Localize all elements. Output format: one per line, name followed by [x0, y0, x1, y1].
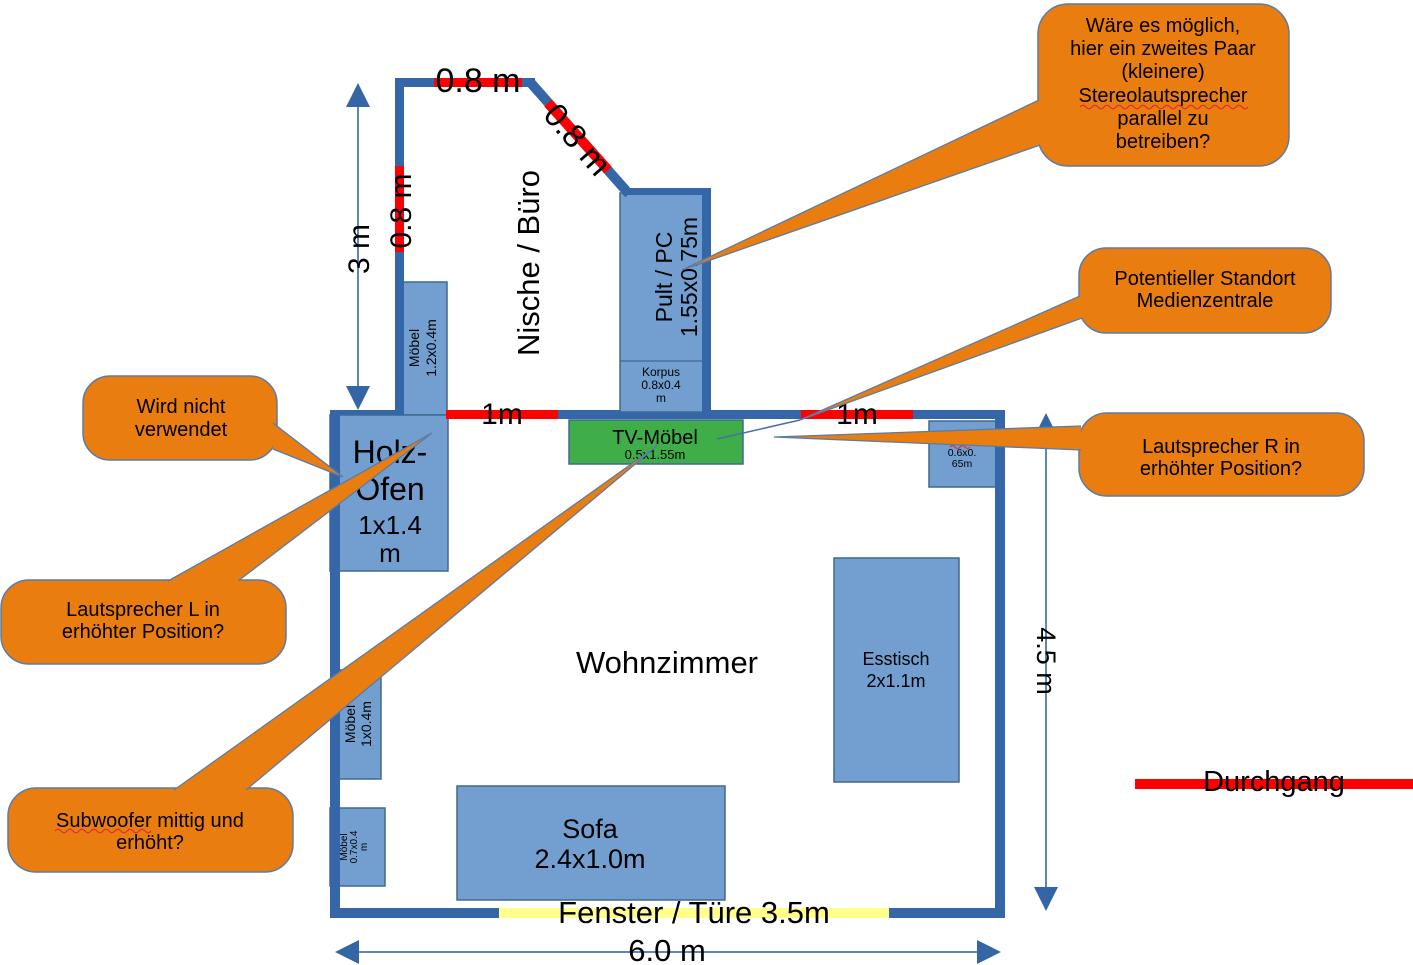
svg-text:parallel zu: parallel zu [1117, 108, 1208, 130]
svg-text:2.4x1.0m: 2.4x1.0m [534, 844, 645, 874]
svg-text:Wäre es möglich,: Wäre es möglich, [1086, 15, 1241, 37]
svg-text:0.8 m: 0.8 m [435, 62, 520, 100]
svg-text:verwendet: verwendet [135, 419, 228, 441]
svg-text:Durchgang: Durchgang [1203, 766, 1345, 798]
svg-text:erhöhter Position?: erhöhter Position? [62, 621, 224, 643]
svg-text:1x1.4: 1x1.4 [358, 510, 422, 540]
svg-text:Esstisch: Esstisch [862, 649, 929, 669]
svg-text:m: m [656, 391, 666, 405]
svg-text:Medienzentrale: Medienzentrale [1137, 290, 1274, 312]
svg-text:1m: 1m [481, 398, 523, 431]
svg-text:Wird nicht: Wird nicht [137, 396, 226, 418]
svg-text:betreiben?: betreiben? [1116, 131, 1211, 153]
svg-text:4.5 m: 4.5 m [1031, 627, 1061, 695]
svg-text:Lautsprecher R in: Lautsprecher R in [1142, 436, 1300, 458]
svg-text:3 m: 3 m [343, 224, 376, 274]
svg-text:erhöht?: erhöht? [116, 832, 184, 854]
svg-text:0.8x0.4: 0.8x0.4 [641, 378, 681, 392]
svg-text:2x1.1m: 2x1.1m [866, 671, 925, 691]
svg-text:m: m [379, 538, 401, 568]
svg-text:0.8 m: 0.8 m [385, 173, 418, 248]
svg-text:0.5x1.55m: 0.5x1.55m [625, 447, 686, 462]
svg-text:Pult / PC: Pult / PC [651, 232, 677, 323]
svg-text:Nische / Büro: Nische / Büro [511, 170, 546, 356]
svg-text:Möbel: Möbel [342, 705, 358, 743]
svg-text:m: m [359, 843, 370, 851]
svg-text:Potentieller Standort: Potentieller Standort [1114, 268, 1296, 290]
svg-text:Fenster / Türe 3.5m: Fenster / Türe 3.5m [558, 895, 830, 930]
svg-text:Stereolautsprecher: Stereolautsprecher [1079, 85, 1248, 107]
svg-text:Wohnzimmer: Wohnzimmer [576, 645, 758, 680]
svg-text:Lautsprecher L in: Lautsprecher L in [66, 599, 220, 621]
svg-text:Subwoofer mittig und: Subwoofer mittig und [56, 810, 244, 832]
svg-text:Sofa: Sofa [562, 814, 619, 844]
svg-text:65m: 65m [952, 458, 973, 470]
svg-text:1.2x0.4m: 1.2x0.4m [423, 319, 439, 377]
svg-text:6.0 m: 6.0 m [628, 933, 706, 965]
svg-text:hier ein zweites Paar: hier ein zweites Paar [1070, 38, 1256, 60]
svg-text:erhöhter Position?: erhöhter Position? [1140, 458, 1302, 480]
svg-text:Korpus: Korpus [642, 365, 680, 379]
svg-text:TV-Möbel: TV-Möbel [612, 427, 698, 449]
svg-text:1x0.4m: 1x0.4m [358, 701, 374, 747]
svg-text:Möbel: Möbel [406, 329, 422, 367]
svg-text:(kleinere): (kleinere) [1121, 61, 1204, 83]
svg-text:1.55x0.75m: 1.55x0.75m [676, 217, 702, 337]
